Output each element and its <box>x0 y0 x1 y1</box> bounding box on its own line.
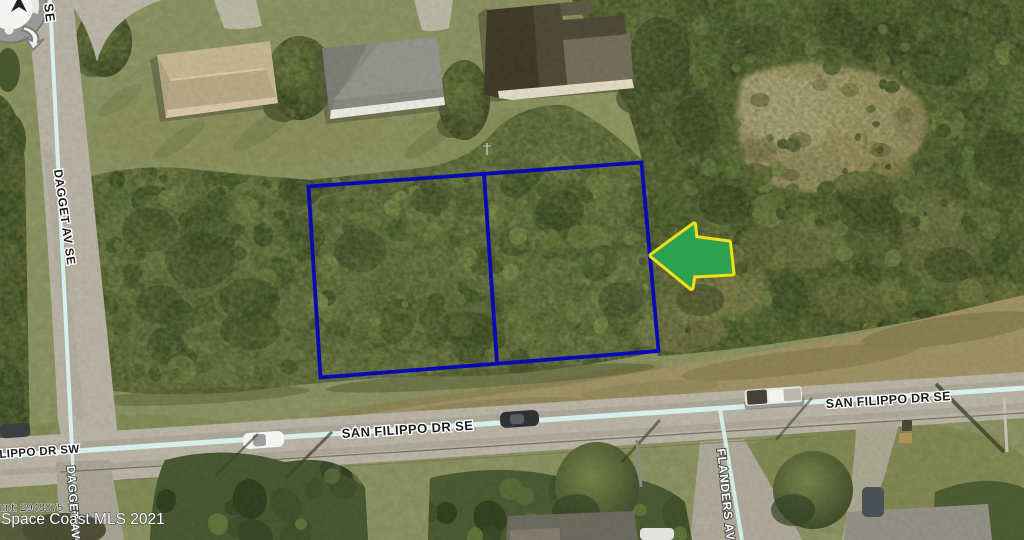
svg-text:Space Coast MLS 2021: Space Coast MLS 2021 <box>1 511 165 528</box>
svg-text:SE: SE <box>41 3 58 24</box>
